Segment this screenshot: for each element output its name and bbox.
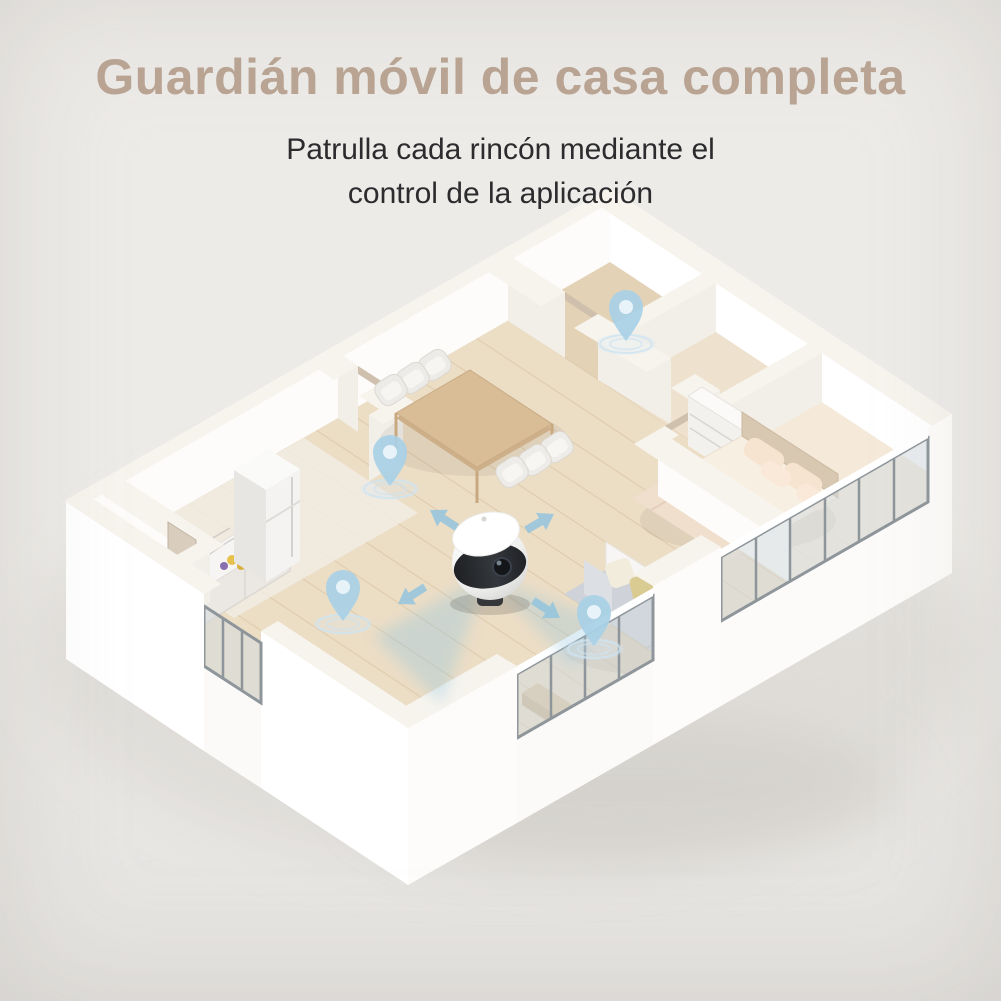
refrigerator [234,449,300,582]
page-subtitle: Patrulla cada rincón mediante el control… [0,128,1001,217]
subtitle-line-1: Patrulla cada rincón mediante el [286,133,715,166]
header: Guardián móvil de casa completa Patrulla… [0,0,1001,217]
subtitle-line-2: control de la aplicación [348,177,653,210]
camera-lens [493,558,511,576]
fruit [220,562,228,570]
page-title: Guardián móvil de casa completa [0,0,1001,106]
